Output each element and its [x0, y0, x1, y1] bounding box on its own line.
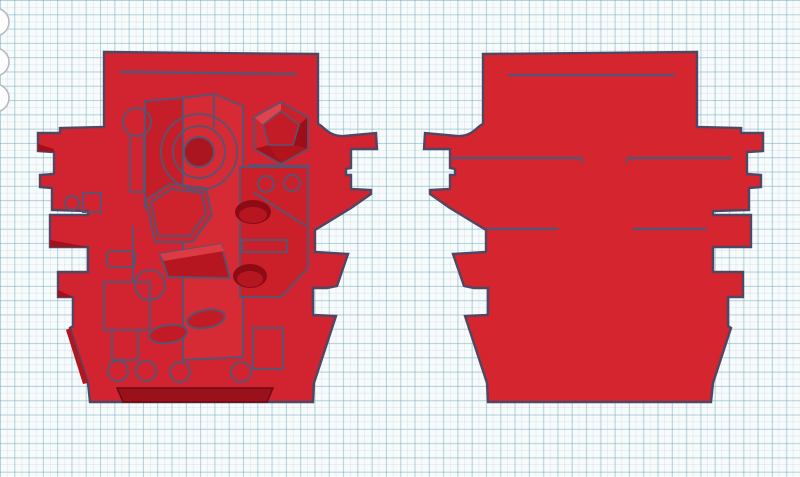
edge-tool-button-icon[interactable]: [0, 8, 9, 36]
edge-tool-button-icon[interactable]: [0, 84, 9, 112]
hatch-core: [184, 137, 214, 167]
workplane-scene: [0, 0, 800, 477]
part-detailed-panel[interactable]: [38, 52, 377, 402]
edge-tool-button-icon[interactable]: [0, 48, 9, 76]
recessed-bar: [117, 388, 273, 402]
part-blank-panel[interactable]: [424, 52, 763, 402]
design-canvas[interactable]: [0, 0, 800, 477]
left-edge-toolbar: [0, 8, 9, 112]
recessed-oval-floor: [239, 207, 267, 223]
recessed-oval-floor: [237, 271, 263, 287]
part-outline: [424, 52, 763, 402]
plate-top-line: [248, 165, 310, 166]
